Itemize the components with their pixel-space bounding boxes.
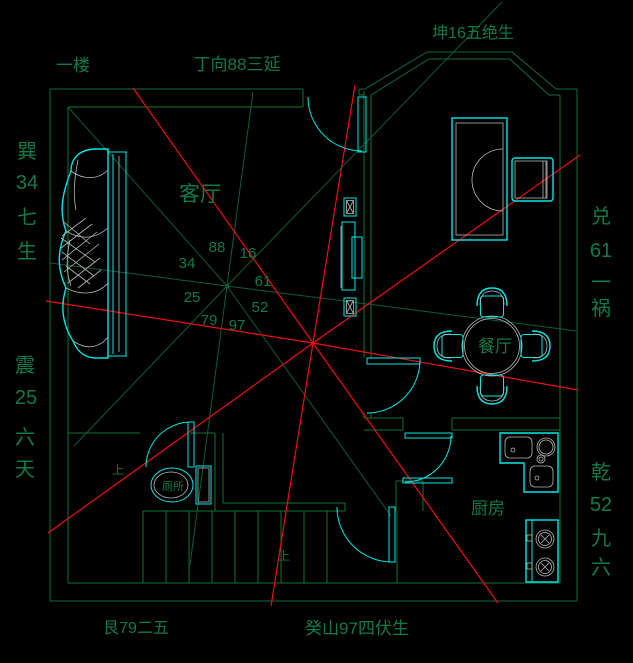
- side-label-zhen: 震 25 六 天: [15, 355, 37, 481]
- star-se: 52: [252, 299, 269, 316]
- dui-char3: 祸: [591, 297, 611, 320]
- red-ray: [133, 88, 313, 343]
- zhen-char3: 天: [15, 459, 35, 481]
- zhen-char2: 六: [15, 426, 35, 449]
- dui-num: 61: [590, 240, 612, 262]
- door-leaf: [405, 433, 452, 438]
- green-ray: [227, 286, 577, 331]
- piano-outline: [452, 118, 507, 240]
- sink-basin-2: [530, 466, 553, 487]
- star-sw: 25: [184, 289, 201, 306]
- kitchen-door: [403, 433, 452, 483]
- bay-window-outer: [365, 52, 556, 89]
- green-ray: [227, 286, 391, 516]
- star-w: 34: [179, 255, 196, 272]
- column-x-mark: [347, 201, 354, 214]
- tv-cabinet: [341, 222, 362, 290]
- footer-labels: 艮79二五 癸山97四伏生: [103, 619, 409, 638]
- star-e: 61: [255, 273, 272, 290]
- qian-char: 乾: [591, 461, 611, 484]
- floor-label: 一楼: [56, 56, 90, 75]
- floorplan-canvas: 一楼 丁向88三延 坤16五绝生 艮79二五 癸山97四伏生 巽 34 七 生 …: [0, 0, 633, 663]
- dining-chair-east: [521, 331, 550, 361]
- kitchen-counter: [500, 433, 558, 492]
- header-labels: 一楼 丁向88三延 坤16五绝生: [56, 24, 514, 75]
- door-swing-arc: [308, 97, 362, 151]
- drain-1: [511, 448, 515, 452]
- xun-char3: 生: [17, 240, 37, 263]
- toilet-door: [146, 422, 194, 467]
- hatch-lines: [61, 218, 101, 288]
- side-label-qian: 乾 52 九 六: [590, 461, 612, 579]
- green-ray-center: [226, 285, 230, 289]
- door-swing-arc: [146, 422, 191, 467]
- qian-char2: 九: [591, 527, 611, 550]
- kun-label: 坤16五绝生: [432, 24, 514, 42]
- sitting-label: 癸山97四伏生: [305, 619, 409, 638]
- xun-char: 巽: [17, 141, 37, 163]
- facing-label: 丁向88三延: [194, 55, 281, 74]
- column-x-mark: [347, 301, 354, 314]
- xun-num: 34: [16, 172, 38, 194]
- star-s-left: 79: [201, 312, 218, 329]
- star-s: 97: [229, 317, 246, 334]
- console-table: [108, 152, 127, 356]
- red-ray: [48, 343, 313, 533]
- dining-chair-north: [477, 288, 507, 317]
- faucet-outer: [537, 455, 545, 463]
- entrance-door: [308, 97, 366, 152]
- door-swing-arc: [405, 436, 451, 482]
- dui-char2: 一: [591, 272, 611, 294]
- toilet-cistern-inner: [198, 468, 209, 502]
- cabinet-box-small: [352, 237, 362, 278]
- sofa: [59, 149, 108, 358]
- star-n: 88: [209, 239, 226, 256]
- side-label-dui: 兑 61 一 祸: [590, 205, 612, 320]
- qian-num: 52: [590, 494, 612, 516]
- piano-bench: [512, 158, 553, 201]
- burner-1-cross: [541, 535, 549, 543]
- stairs-up-label-2: 上: [278, 549, 290, 563]
- stairs-up-label-1: 上: [112, 463, 124, 477]
- counter-outline: [500, 433, 558, 492]
- hall-door: [337, 507, 395, 562]
- zhen-num: 25: [15, 387, 37, 409]
- piano-body: [456, 123, 503, 235]
- dining-chair-south: [477, 375, 507, 404]
- red-ray: [313, 155, 580, 343]
- drain-2: [535, 476, 539, 480]
- piano: [452, 118, 507, 240]
- qian-char3: 六: [591, 556, 611, 579]
- floorplan-stage: 一楼 丁向88三延 坤16五绝生 艮79二五 癸山97四伏生 巽 34 七 生 …: [0, 0, 633, 663]
- burner-2-cross: [541, 563, 549, 571]
- outer-boundary: [50, 52, 577, 601]
- star-numbers: 88 16 34 61 25 52 79 97: [179, 239, 272, 334]
- dui-char: 兑: [591, 205, 611, 228]
- staircase: [143, 511, 327, 583]
- bay-window-inner: [371, 59, 560, 95]
- green-ray: [74, 286, 227, 446]
- stove-knob-2: [527, 563, 532, 569]
- stove: [526, 520, 558, 582]
- green-ray: [50, 263, 227, 286]
- piano-curve: [472, 149, 503, 211]
- red-ray: [313, 343, 578, 390]
- side-label-xun: 巽 34 七 生: [16, 141, 38, 263]
- kitchen-label: 厨房: [471, 499, 505, 518]
- sofa-hatch-pattern: [61, 218, 101, 288]
- red-ray: [46, 301, 313, 343]
- xun-char2: 七: [17, 206, 37, 229]
- console-frame: [108, 152, 127, 356]
- red-ray: [271, 343, 313, 606]
- gen-label: 艮79二五: [103, 620, 169, 637]
- star-ne: 16: [240, 245, 257, 262]
- sink-bowl-outer: [537, 438, 555, 456]
- living-room-label: 客厅: [179, 183, 221, 206]
- red-ray: [313, 343, 498, 603]
- faucet-inner: [539, 457, 543, 461]
- cabinet-box: [342, 222, 355, 290]
- sink-basin-1: [505, 437, 532, 458]
- dining-chair-west: [434, 331, 463, 361]
- wall-column-top: [344, 198, 356, 216]
- dining-room-label: 餐厅: [478, 337, 512, 356]
- door-swing-arc: [337, 507, 392, 562]
- stove-knob-1: [527, 535, 532, 541]
- sink-bowl-inner: [539, 440, 553, 454]
- star-rays-green: [50, 2, 577, 565]
- zhen-char: 震: [15, 355, 35, 377]
- door-swing-arc: [367, 360, 420, 413]
- toilet-label: 厕所: [162, 480, 184, 493]
- bench-inner: [515, 161, 547, 198]
- living-dining-door: [367, 358, 420, 413]
- stair-direction-labels: 上 上: [112, 463, 290, 563]
